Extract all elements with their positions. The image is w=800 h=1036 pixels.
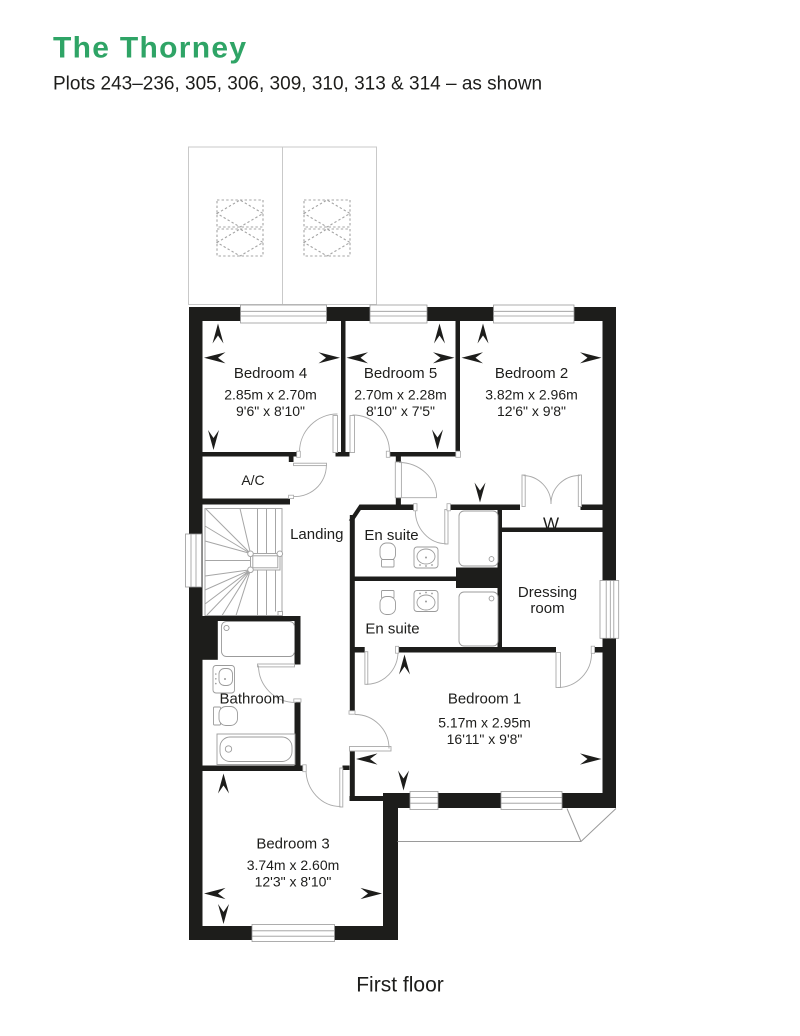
svg-text:Dressing: Dressing	[518, 584, 577, 601]
svg-text:Bedroom 4: Bedroom 4	[234, 365, 307, 382]
svg-text:9'6" x 8'10": 9'6" x 8'10"	[236, 403, 305, 419]
svg-text:En suite: En suite	[364, 527, 418, 544]
svg-text:12'6" x 9'8": 12'6" x 9'8"	[497, 403, 566, 419]
svg-text:W: W	[543, 514, 559, 533]
svg-text:5.17m x 2.95m: 5.17m x 2.95m	[438, 715, 531, 731]
svg-text:12'3" x 8'10": 12'3" x 8'10"	[255, 874, 332, 890]
svg-text:room: room	[530, 600, 564, 617]
svg-text:3.74m x 2.60m: 3.74m x 2.60m	[247, 857, 340, 873]
svg-text:Bedroom 1: Bedroom 1	[448, 691, 521, 708]
svg-text:The Thorney: The Thorney	[53, 32, 247, 65]
svg-text:2.85m x 2.70m: 2.85m x 2.70m	[224, 387, 317, 403]
svg-text:8'10" x 7'5": 8'10" x 7'5"	[366, 403, 435, 419]
svg-text:Bathroom: Bathroom	[219, 691, 284, 708]
svg-text:En suite: En suite	[365, 621, 419, 638]
svg-text:Bedroom 3: Bedroom 3	[256, 836, 329, 853]
svg-text:16'11" x 9'8": 16'11" x 9'8"	[447, 731, 523, 747]
svg-text:Bedroom 5: Bedroom 5	[364, 365, 437, 382]
svg-text:2.70m x 2.28m: 2.70m x 2.28m	[354, 387, 447, 403]
svg-text:A/C: A/C	[241, 472, 264, 488]
svg-text:Plots 243–236, 305, 306, 309,: Plots 243–236, 305, 306, 309, 310, 313 &…	[53, 74, 542, 95]
svg-text:3.82m x 2.96m: 3.82m x 2.96m	[485, 387, 578, 403]
svg-text:Landing: Landing	[290, 526, 343, 543]
svg-text:First floor: First floor	[356, 974, 444, 997]
svg-text:Bedroom 2: Bedroom 2	[495, 365, 568, 382]
